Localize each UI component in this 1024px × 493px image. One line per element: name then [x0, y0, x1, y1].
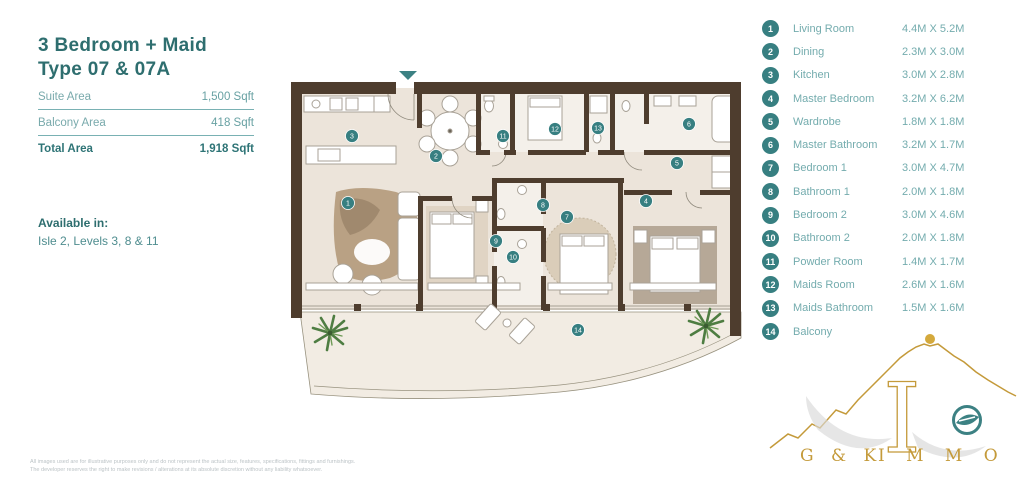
- area-row-total: Total Area 1,918 Sqft: [38, 136, 254, 161]
- disclaimer-line1: All images used are for illustrative pur…: [30, 458, 355, 466]
- room-marker-number: 2: [434, 153, 438, 160]
- legend-room-dims: 3.2M X 1.7M: [902, 139, 1014, 151]
- legend-number-badge: 13: [762, 300, 779, 317]
- legend-room-dims: 1.5M X 1.6M: [902, 302, 1014, 314]
- legend-room-dims: 3.2M X 6.2M: [902, 93, 1014, 105]
- legend-number-badge: 3: [762, 67, 779, 84]
- legend-room-dims: 1.4M X 1.7M: [902, 256, 1014, 268]
- legend-room-label: Kitchen: [793, 69, 902, 81]
- legend-number-badge: 7: [762, 160, 779, 177]
- legend-room-dims: 3.0M X 4.7M: [902, 162, 1014, 174]
- legend-row: 9Bedroom 23.0M X 4.6M: [762, 203, 1014, 226]
- legend-room-label: Bathroom 1: [793, 186, 902, 198]
- area-value: 418 Sqft: [211, 117, 254, 129]
- legend-number-badge: 12: [762, 276, 779, 293]
- legend-room-dims: 4.4M X 5.2M: [902, 23, 1014, 35]
- legend-number-badge: 1: [762, 20, 779, 37]
- legend-number-badge: 4: [762, 90, 779, 107]
- room-marker-number: 8: [541, 202, 545, 209]
- legend-room-dims: 1.8M X 1.8M: [902, 116, 1014, 128]
- area-label: Total Area: [38, 143, 93, 155]
- legend-number-badge: 10: [762, 230, 779, 247]
- legend-room-label: Living Room: [793, 23, 902, 35]
- area-row-balcony: Balcony Area 418 Sqft: [38, 110, 254, 136]
- legend-room-label: Bathroom 2: [793, 232, 902, 244]
- legend-number-badge: 2: [762, 43, 779, 60]
- legend-room-dims: 3.0M X 2.8M: [902, 69, 1014, 81]
- legend-row: 13Maids Bathroom1.5M X 1.6M: [762, 297, 1014, 320]
- room-marker-number: 1: [346, 200, 350, 207]
- legend-row: 2Dining2.3M X 3.0M: [762, 40, 1014, 63]
- floorplan-page: 3 Bedroom + Maid Type 07 & 07A Suite Are…: [0, 0, 1024, 493]
- room-marker-number: 14: [574, 327, 582, 334]
- page-title-line2: Type 07 & 07A: [38, 58, 207, 82]
- legend-row: 8Bathroom 12.0M X 1.8M: [762, 180, 1014, 203]
- room-marker-number: 12: [551, 126, 559, 133]
- room-marker-number: 13: [594, 125, 602, 132]
- legend-number-badge: 9: [762, 207, 779, 224]
- legend-room-label: Wardrobe: [793, 116, 902, 128]
- room-marker-number: 10: [509, 254, 517, 261]
- room-marker-number: 6: [687, 121, 691, 128]
- legend-room-label: Master Bedroom: [793, 93, 902, 105]
- legend-number-badge: 5: [762, 113, 779, 130]
- area-label: Suite Area: [38, 91, 91, 103]
- legend-room-dims: 3.0M X 4.6M: [902, 209, 1014, 221]
- legend-room-label: Maids Room: [793, 279, 902, 291]
- legend-room-label: Powder Room: [793, 256, 902, 268]
- room-marker-number: 9: [494, 238, 498, 245]
- legend-room-label: Bedroom 2: [793, 209, 902, 221]
- legend-room-dims: 2.3M X 3.0M: [902, 46, 1014, 58]
- legend-number-badge: 11: [762, 253, 779, 270]
- legend-row: 5Wardrobe1.8M X 1.8M: [762, 110, 1014, 133]
- page-title-line1: 3 Bedroom + Maid: [38, 34, 207, 58]
- room-marker-number: 3: [350, 133, 354, 140]
- area-row-suite: Suite Area 1,500 Sqft: [38, 84, 254, 110]
- area-label: Balcony Area: [38, 117, 106, 129]
- legend-room-dims: 2.0M X 1.8M: [902, 186, 1014, 198]
- logo-brand-right: I M M O: [878, 446, 1006, 466]
- legend-row: 11Powder Room1.4M X 1.7M: [762, 250, 1014, 273]
- legend-number-badge: 6: [762, 137, 779, 154]
- legend-row: 7Bedroom 13.0M X 4.7M: [762, 157, 1014, 180]
- legend-room-label: Master Bathroom: [793, 139, 902, 151]
- legend-row: 12Maids Room2.6M X 1.6M: [762, 273, 1014, 296]
- legend-room-dims: 2.6M X 1.6M: [902, 279, 1014, 291]
- logo-compass-icon: [954, 407, 981, 434]
- legend-room-label: Maids Bathroom: [793, 302, 902, 314]
- legend-row: 6Master Bathroom3.2M X 1.7M: [762, 133, 1014, 156]
- legend-row: 3Kitchen3.0M X 2.8M: [762, 64, 1014, 87]
- logo-swoosh-left: [806, 396, 892, 448]
- legend: 1Living Room4.4M X 5.2M2Dining2.3M X 3.0…: [762, 17, 1014, 343]
- availability-heading: Available in:: [38, 216, 159, 230]
- legend-row: 4Master Bedroom3.2M X 6.2M: [762, 87, 1014, 110]
- brand-logo: I G & K I M M O: [768, 322, 1020, 477]
- legend-room-label: Bedroom 1: [793, 162, 902, 174]
- legend-row: 10Bathroom 22.0M X 1.8M: [762, 227, 1014, 250]
- room-marker-number: 4: [644, 198, 648, 205]
- legend-room-dims: 2.0M X 1.8M: [902, 232, 1014, 244]
- logo-gold-dot-icon: [925, 334, 935, 344]
- disclaimer: All images used are for illustrative pur…: [30, 458, 355, 474]
- room-marker-number: 7: [565, 214, 569, 221]
- floor-plan: 1234567891011121314: [285, 64, 747, 412]
- room-marker-number: 11: [499, 133, 506, 140]
- page-title: 3 Bedroom + Maid Type 07 & 07A: [38, 34, 207, 82]
- entry-arrow-icon: [399, 71, 417, 80]
- availability: Available in: Isle 2, Levels 3, 8 & 11: [38, 216, 159, 248]
- room-marker-number: 5: [675, 160, 679, 167]
- area-value: 1,918 Sqft: [200, 143, 254, 155]
- logo-card: [834, 326, 958, 352]
- legend-number-badge: 8: [762, 183, 779, 200]
- area-table: Suite Area 1,500 Sqft Balcony Area 418 S…: [38, 84, 254, 161]
- legend-room-label: Dining: [793, 46, 902, 58]
- availability-text: Isle 2, Levels 3, 8 & 11: [38, 234, 159, 248]
- legend-row: 1Living Room4.4M X 5.2M: [762, 17, 1014, 40]
- logo-brand-left: G & K: [800, 446, 882, 466]
- area-value: 1,500 Sqft: [202, 91, 254, 103]
- disclaimer-line2: The developer reserves the right to make…: [30, 466, 355, 474]
